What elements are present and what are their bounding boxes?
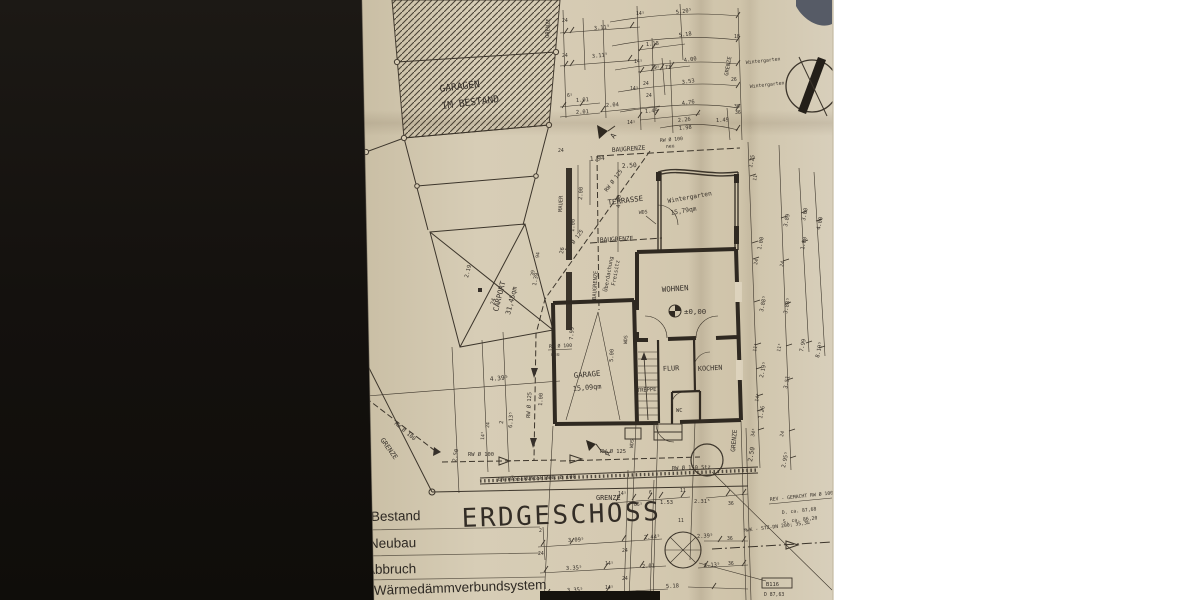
dim-label: 14⁵ bbox=[605, 561, 614, 567]
dim-label: 2.00 bbox=[578, 187, 585, 200]
dim-label: 94 bbox=[535, 252, 541, 258]
wds-label: WDS bbox=[639, 209, 648, 216]
dim-label: 24 bbox=[643, 81, 649, 87]
paper-edge-shadow bbox=[540, 591, 660, 600]
dim-label: 1.00 bbox=[538, 393, 545, 406]
dim-label: 1.53 bbox=[660, 500, 673, 506]
dim-label: 2.50 bbox=[622, 162, 638, 170]
dim-label: 5.00 bbox=[609, 349, 616, 362]
paper-fold bbox=[362, 110, 834, 136]
dim-label: 24 bbox=[622, 548, 628, 554]
plan-drawing: GARAGEN IM BESTAND CARPORT 31,45qm 2.19 … bbox=[0, 0, 1200, 600]
dim-label: 24 bbox=[562, 18, 568, 24]
dim-label: 7.99 bbox=[569, 327, 576, 340]
dim-label: 2.01 bbox=[642, 563, 655, 570]
legend-item-neubau: Neubau bbox=[369, 535, 417, 551]
section-marker-label: A bbox=[603, 451, 612, 456]
grenze-label: GRENZE bbox=[545, 18, 552, 38]
dim-label: 24 bbox=[558, 148, 564, 154]
photographed-floor-plan: { "photo": { "background_left_color": "#… bbox=[0, 0, 1200, 600]
dim-label: 39 bbox=[530, 270, 536, 276]
paper-fold bbox=[688, 0, 714, 600]
flur-label: FLUR bbox=[663, 364, 681, 373]
dim-label: 24 bbox=[538, 551, 544, 557]
dim-label: 2.44⁵ bbox=[644, 533, 661, 541]
wds-label: WDS bbox=[629, 439, 636, 448]
dim-label: 3.09⁵ bbox=[568, 536, 585, 544]
rw100-label: RW Ø 100 bbox=[468, 451, 494, 458]
dim-label: 3.35⁵ bbox=[566, 564, 583, 572]
dim-label: 36 bbox=[728, 501, 734, 507]
dim-label: 1.94 bbox=[590, 155, 606, 163]
dim-label: 14⁵ bbox=[634, 59, 643, 65]
wds-label: WDS bbox=[623, 335, 629, 344]
dim-label: 5.18 bbox=[666, 583, 679, 590]
dim-label: 36 bbox=[727, 536, 733, 542]
dark-table-surface bbox=[0, 0, 374, 600]
shaft-id: B116 bbox=[766, 582, 779, 588]
dim-label: 24 bbox=[485, 422, 491, 428]
paper-fold bbox=[740, 0, 760, 600]
dim-label: 2.04 bbox=[606, 102, 619, 109]
mauer-label: MAUER bbox=[558, 195, 565, 212]
dim-label: 79⁵ bbox=[651, 65, 660, 71]
dim-label: 4.00 bbox=[616, 195, 623, 208]
neu-label: neu bbox=[666, 144, 675, 150]
dim-label: 6⁵ bbox=[567, 93, 573, 99]
dim-label: 14⁵ bbox=[618, 491, 627, 497]
dim-label: 14⁵ bbox=[605, 585, 614, 591]
dim-label: 1.18 bbox=[646, 41, 659, 48]
rw125-label: RW Ø 125 bbox=[525, 392, 533, 418]
dim-label: 14⁵ bbox=[480, 431, 487, 440]
dim-label: 6 bbox=[649, 490, 652, 496]
dim-label: 24 bbox=[562, 53, 568, 59]
dim-label: 11 bbox=[680, 488, 686, 494]
dim-label: 14⁵ bbox=[636, 11, 645, 17]
shaft-depth: D 87,63 bbox=[764, 592, 784, 598]
dim-label: 24 bbox=[646, 93, 652, 99]
wc-label: WC bbox=[676, 408, 683, 414]
dim-label: 26 bbox=[731, 77, 737, 83]
dim-label: 2 bbox=[499, 420, 505, 424]
white-margin bbox=[833, 0, 1200, 600]
dim-label: 11 bbox=[678, 518, 684, 524]
dim-label: 24 bbox=[622, 576, 628, 582]
neu-label: neu bbox=[551, 353, 560, 358]
dim-label: 1.00 bbox=[570, 219, 577, 232]
dim-label: 36 bbox=[728, 561, 734, 567]
legend-item-bestand: Bestand bbox=[371, 508, 421, 524]
dim-label: 6.13⁵ bbox=[507, 411, 515, 428]
wohnen-label: WOHNEN bbox=[662, 283, 689, 294]
dim-label: 14⁵ bbox=[630, 86, 639, 92]
